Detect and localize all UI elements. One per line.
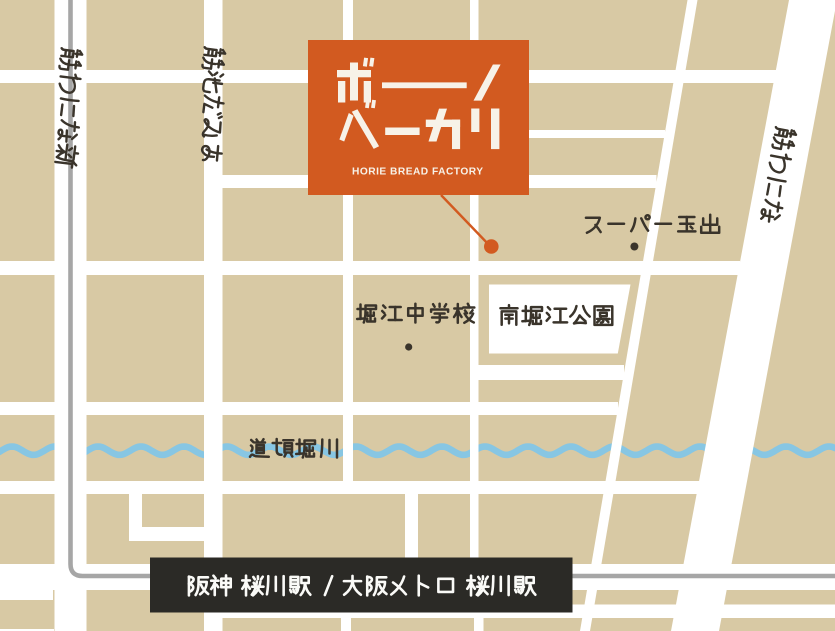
- svg-text:HORIE BREAD FACTORY: HORIE BREAD FACTORY: [352, 167, 483, 178]
